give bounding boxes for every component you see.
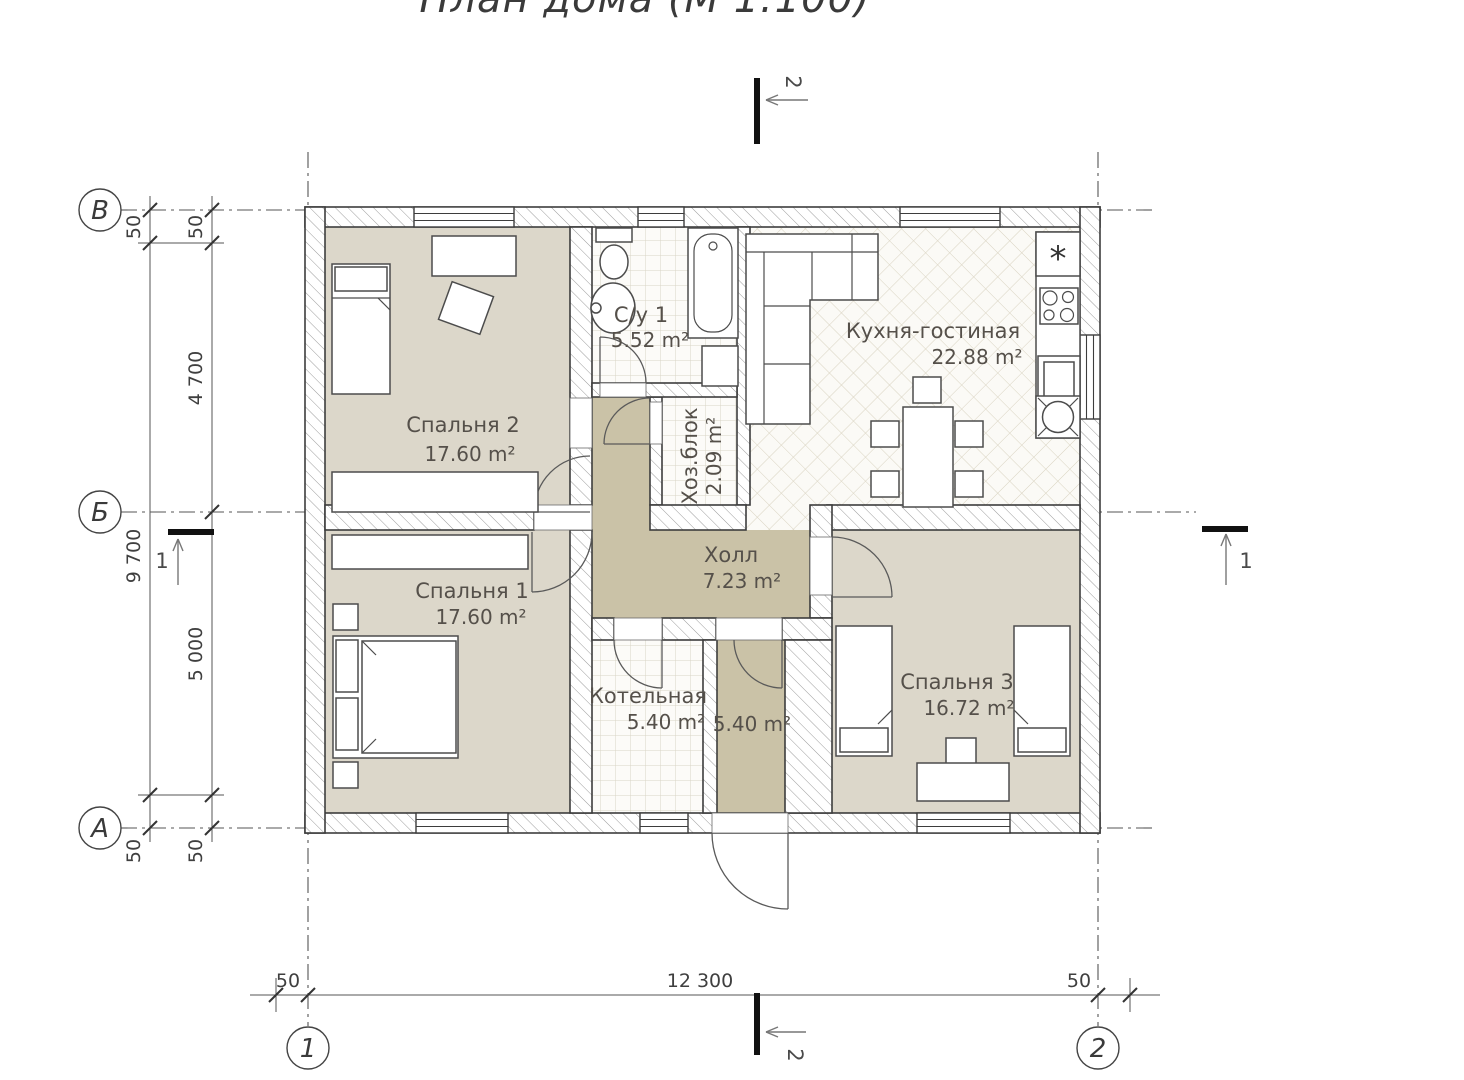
window-bedroom3 bbox=[917, 813, 1010, 833]
wall-exterior-left bbox=[305, 207, 325, 833]
dim-left-outer-bottom: 50 bbox=[123, 839, 145, 863]
room-area: 17.60 m² bbox=[435, 605, 526, 629]
room-name: Кухня-гостиная bbox=[846, 319, 1020, 343]
section-marker-2-bottom: 2 bbox=[754, 993, 807, 1062]
dining-table bbox=[903, 407, 953, 507]
room-area: 5.40 m² bbox=[627, 710, 705, 734]
room-area: 5.40 m² bbox=[713, 712, 791, 736]
section-label-1: 1 bbox=[1239, 549, 1252, 573]
axis-bubble-v: В bbox=[79, 189, 121, 231]
room-area: 7.23 m² bbox=[703, 569, 781, 593]
window-bedroom1 bbox=[416, 813, 508, 833]
room-name: Котельная bbox=[589, 684, 707, 708]
window-kitchen-top bbox=[900, 207, 1000, 227]
dim-bottom-right: 50 bbox=[1067, 970, 1091, 992]
room-name: Спальня 3 bbox=[900, 670, 1013, 694]
room-area: 16.72 m² bbox=[923, 696, 1014, 720]
room-label-vestibule: 5.40 m² bbox=[713, 712, 791, 736]
wall-bedroom2-right bbox=[570, 227, 592, 505]
window-boiler bbox=[640, 813, 688, 833]
room-label-utility: Хоз.блок 2.09 m² bbox=[678, 408, 726, 505]
opening-boiler bbox=[614, 618, 662, 640]
room-name: С/у 1 bbox=[614, 303, 668, 327]
dim-left-inner-bottom: 50 bbox=[185, 839, 207, 863]
room-name: Спальня 1 bbox=[415, 579, 528, 603]
window-bedroom2 bbox=[414, 207, 514, 227]
room-area: 17.60 m² bbox=[424, 442, 515, 466]
axis-label-1: 1 bbox=[300, 1034, 317, 1064]
opening-bedrooms bbox=[534, 505, 592, 530]
dining-chair bbox=[955, 471, 983, 497]
section-label-1: 1 bbox=[155, 549, 168, 573]
wardrobe-bedroom2 bbox=[332, 472, 538, 512]
wall-exterior-right bbox=[1080, 207, 1100, 833]
opening-front-door bbox=[712, 813, 788, 833]
chair-bedroom3 bbox=[946, 738, 976, 764]
axis-bubble-a: А bbox=[79, 807, 121, 849]
floor-plan-drawing: План дома (М 1:100) bbox=[0, 0, 1464, 1080]
section-label-2: 2 bbox=[783, 1048, 807, 1061]
bathtub bbox=[688, 228, 738, 338]
wall-bedroom1-right bbox=[570, 530, 592, 813]
dim-bottom-left: 50 bbox=[276, 970, 300, 992]
dim-left-outer-top: 50 bbox=[123, 215, 145, 239]
dim-left-inner-top: 50 bbox=[185, 215, 207, 239]
desk-bedroom3 bbox=[917, 763, 1009, 801]
opening-bathroom bbox=[600, 383, 646, 397]
wall-hall-bottom-c bbox=[782, 618, 832, 640]
drawing-title: План дома (М 1:100) bbox=[419, 0, 870, 22]
axis-label-a: А bbox=[89, 814, 109, 844]
axis-label-b: Б bbox=[91, 498, 109, 528]
floor-plan-page: План дома (М 1:100) bbox=[0, 0, 1464, 1080]
section-marker-2-top: 2 bbox=[754, 75, 808, 144]
opening-bedroom3 bbox=[810, 537, 832, 595]
kitchen-counter: * bbox=[1036, 232, 1080, 438]
kitchen-sink bbox=[1036, 396, 1080, 438]
dining-chair bbox=[871, 471, 899, 497]
room-area: 22.88 m² bbox=[931, 345, 1022, 369]
room-area: 2.09 m² bbox=[702, 417, 726, 495]
room-name: Хоз.блок bbox=[678, 408, 702, 505]
dining-chair bbox=[913, 377, 941, 403]
opening-utility bbox=[650, 402, 662, 444]
section-marker-1-right: 1 bbox=[1202, 526, 1253, 585]
axis-bubble-1: 1 bbox=[287, 1027, 329, 1069]
section-marker-1-left: 1 bbox=[155, 529, 214, 585]
dim-left-inner-lower: 5 000 bbox=[185, 627, 207, 681]
dim-bottom-total: 12 300 bbox=[667, 970, 733, 992]
window-kitchen-right bbox=[1080, 335, 1100, 419]
bed-single-right-bedroom3 bbox=[1014, 626, 1070, 756]
bed-single-bedroom2 bbox=[332, 264, 390, 394]
desk-bedroom2 bbox=[432, 236, 516, 276]
wall-hall-bottom-a bbox=[592, 618, 614, 640]
washing-machine bbox=[702, 346, 738, 386]
window-bathroom bbox=[638, 207, 684, 227]
dining-chair bbox=[955, 421, 983, 447]
opening-bedroom2 bbox=[570, 398, 592, 448]
section-label-2: 2 bbox=[781, 75, 805, 88]
door-entrance bbox=[712, 833, 788, 909]
axis-bubble-2: 2 bbox=[1077, 1027, 1119, 1069]
stove bbox=[1040, 288, 1078, 324]
dining-chair bbox=[871, 421, 899, 447]
dim-left-outer-total: 9 700 bbox=[123, 529, 145, 583]
wardrobe-bedroom1 bbox=[332, 535, 528, 569]
axis-bubble-b: Б bbox=[79, 491, 121, 533]
wall-hall-bottom-b bbox=[662, 618, 716, 640]
fridge-icon: * bbox=[1050, 239, 1067, 279]
axis-label-v: В bbox=[91, 196, 109, 226]
wall-mid-center bbox=[650, 505, 746, 530]
wall-mid-right bbox=[827, 505, 1080, 530]
room-name: Спальня 2 bbox=[406, 413, 519, 437]
bed-single-left-bedroom3 bbox=[836, 626, 892, 756]
room-area: 5.52 m² bbox=[611, 328, 689, 352]
room-name: Холл bbox=[704, 543, 758, 567]
axis-label-2: 2 bbox=[1090, 1034, 1107, 1064]
dim-left-inner-upper: 4 700 bbox=[185, 351, 207, 405]
wall-vestibule-bedroom3 bbox=[785, 640, 832, 813]
opening-vestibule bbox=[716, 618, 782, 640]
